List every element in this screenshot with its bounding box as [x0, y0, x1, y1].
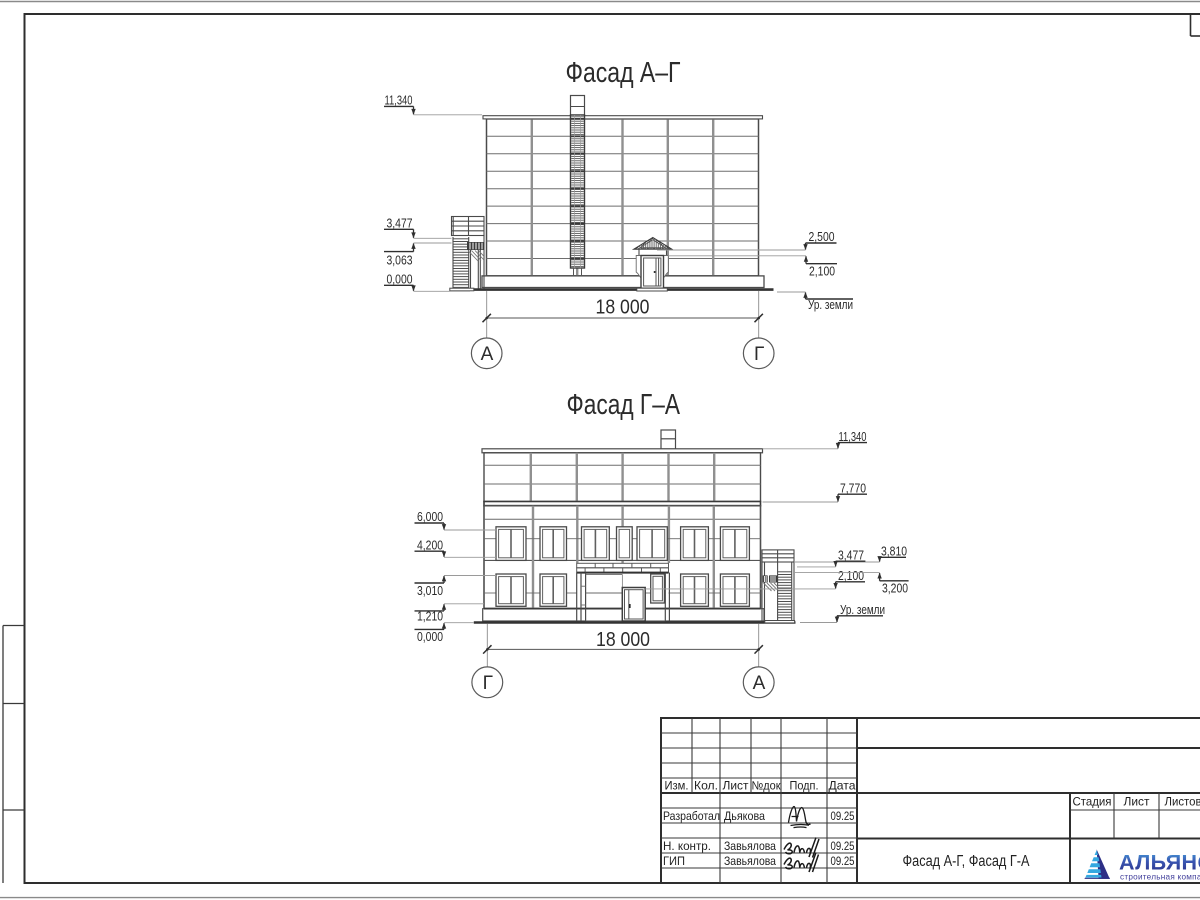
svg-text:АЛЬЯНС: АЛЬЯНС [1119, 851, 1200, 875]
svg-text:3,200: 3,200 [882, 582, 908, 596]
svg-text:Разработал: Разработал [663, 809, 720, 823]
svg-text:3,810: 3,810 [881, 545, 907, 559]
svg-text:Ур. земли: Ур. земли [840, 603, 885, 617]
svg-text:Изм.: Изм. [665, 779, 689, 793]
svg-text:3,477: 3,477 [838, 548, 864, 562]
svg-text:Стадия: Стадия [1073, 795, 1112, 809]
svg-text:4,200: 4,200 [417, 538, 443, 552]
svg-text:Н. контр.: Н. контр. [663, 839, 711, 853]
svg-text:ГИП: ГИП [663, 854, 685, 868]
svg-text:7,770: 7,770 [840, 481, 866, 495]
svg-text:0,000: 0,000 [387, 273, 413, 287]
svg-text:№док: №док [752, 779, 782, 793]
svg-text:2,100: 2,100 [809, 265, 835, 279]
svg-text:2,100: 2,100 [838, 569, 864, 583]
svg-text:09.25: 09.25 [831, 809, 855, 823]
svg-text:Листов: Листов [1165, 795, 1200, 809]
svg-text:11,340: 11,340 [839, 430, 867, 444]
svg-text:Ур. земли: Ур. земли [808, 298, 853, 312]
svg-text:строительная компания: строительная компания [1120, 873, 1200, 882]
svg-text:Фасад Г–А: Фасад Г–А [567, 389, 681, 421]
svg-text:Подп.: Подп. [790, 779, 819, 793]
svg-text:Фасад А–Г: Фасад А–Г [566, 57, 681, 89]
svg-text:18 000: 18 000 [596, 628, 650, 651]
svg-text:А: А [753, 673, 766, 694]
svg-text:0,000: 0,000 [417, 630, 443, 644]
svg-text:Завьялова: Завьялова [724, 839, 776, 853]
svg-text:Дьякова: Дьякова [724, 809, 765, 823]
svg-text:Кол.: Кол. [694, 779, 718, 793]
svg-text:Лист: Лист [723, 779, 749, 793]
svg-text:А: А [481, 344, 494, 365]
svg-text:Фасад А-Г, Фасад Г-А: Фасад А-Г, Фасад Г-А [903, 853, 1031, 870]
svg-text:11,340: 11,340 [385, 94, 413, 108]
svg-text:09.25: 09.25 [831, 839, 855, 853]
svg-text:Дата: Дата [829, 779, 856, 793]
svg-text:Завьялова: Завьялова [724, 854, 776, 868]
svg-text:Г: Г [754, 344, 764, 365]
svg-text:Г: Г [483, 673, 493, 694]
svg-text:18 000: 18 000 [596, 295, 650, 318]
svg-text:1,210: 1,210 [417, 610, 443, 624]
svg-text:09.25: 09.25 [831, 854, 855, 868]
svg-text:3,063: 3,063 [387, 253, 413, 267]
svg-text:3,010: 3,010 [417, 584, 443, 598]
svg-text:Лист: Лист [1124, 795, 1150, 809]
svg-text:2,500: 2,500 [809, 230, 835, 244]
svg-text:3,477: 3,477 [387, 217, 413, 231]
svg-text:6,000: 6,000 [417, 510, 443, 524]
